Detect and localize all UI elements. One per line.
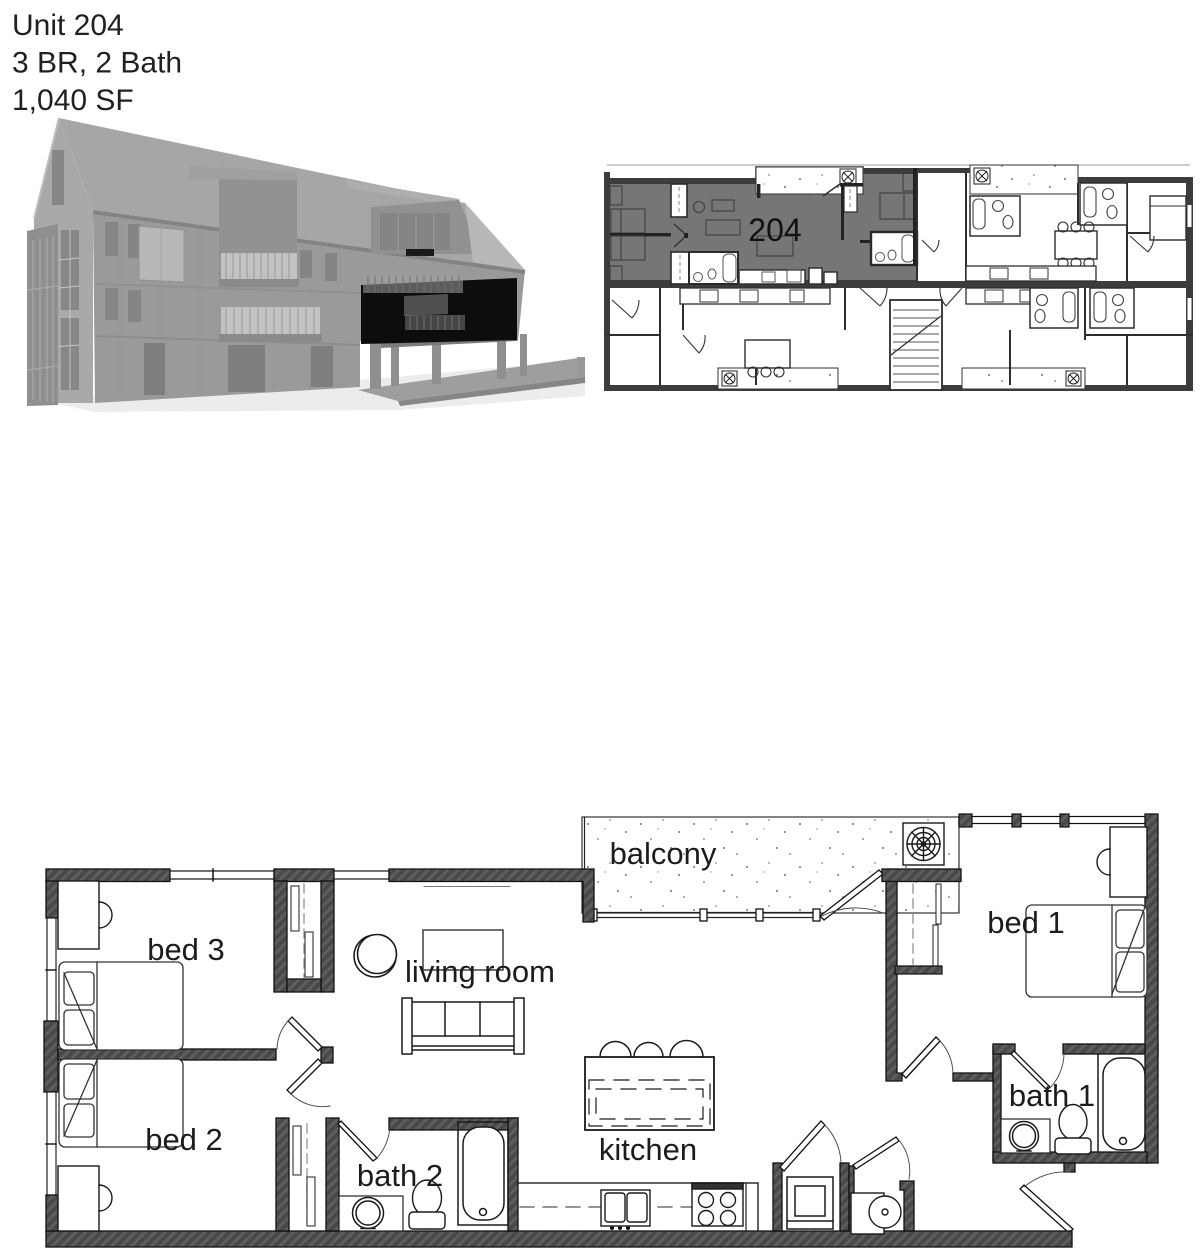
svg-text:1,040 SF: 1,040 SF: [12, 84, 134, 117]
svg-text:balcony: balcony: [610, 836, 717, 871]
svg-text:3 BR, 2 Bath: 3 BR, 2 Bath: [12, 47, 182, 80]
svg-text:bed 1: bed 1: [987, 905, 1065, 940]
svg-text:bed 2: bed 2: [145, 1122, 223, 1157]
svg-text:living room: living room: [405, 954, 555, 989]
svg-text:bed 3: bed 3: [147, 932, 225, 967]
svg-text:bath 2: bath 2: [357, 1158, 443, 1193]
svg-text:204: 204: [748, 212, 801, 248]
svg-text:bath 1: bath 1: [1009, 1078, 1095, 1113]
svg-text:kitchen: kitchen: [599, 1132, 697, 1167]
svg-text:Unit 204: Unit 204: [12, 9, 124, 42]
